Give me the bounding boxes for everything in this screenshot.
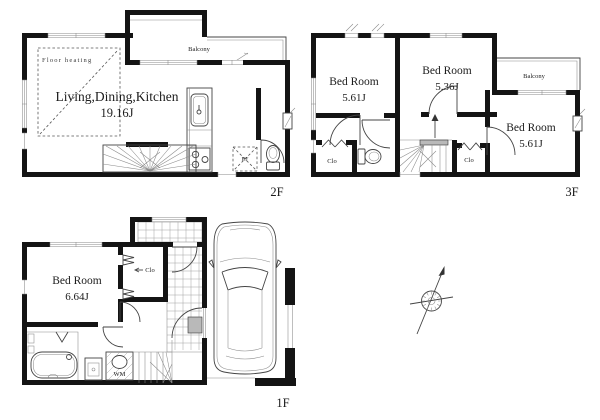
2f-room-area: 19.16J [101,106,134,120]
3f-bedroom1-area: 5.61J [342,92,366,104]
3f-balcony-label: Balcony [523,73,545,80]
2f-ac-sleeve-icon [283,113,292,129]
1f-bedroom-label: Bed Room [52,275,102,287]
1f-floor-label: 1F [276,396,289,410]
3f-bedroom1-label: Bed Room [329,76,379,88]
entrance-step [188,317,202,333]
washing-machine-icon: WM [106,352,133,380]
3f-floor-label: 3F [565,185,578,199]
2f-room-label: Living,Dining,Kitchen [56,89,179,104]
3f-bedroom2-label: Bed Room [422,65,472,77]
1f-bedroom-area: 6.64J [65,291,89,303]
refrigerator-label: RF [242,157,249,163]
3f-bedroom3-label: Bed Room [506,122,556,134]
3f-closet2-label: Clo [464,157,473,164]
3f-bedroom2-area: 5.36J [435,81,459,93]
floor-plan-page: Floor heating RF [0,0,600,420]
floor-plan-drawing: Floor heating RF [0,0,600,420]
floor-heating-label: Floor heating [42,57,92,64]
2f-floor-label: 2F [270,185,283,199]
1f-closet-label: Clo [145,267,154,274]
3f-bedroom3-area: 5.61J [519,138,543,150]
2f-balcony-label: Balcony [188,46,210,53]
3f-closet1-label: Clo [327,158,336,165]
washing-machine-label: WM [114,371,126,378]
